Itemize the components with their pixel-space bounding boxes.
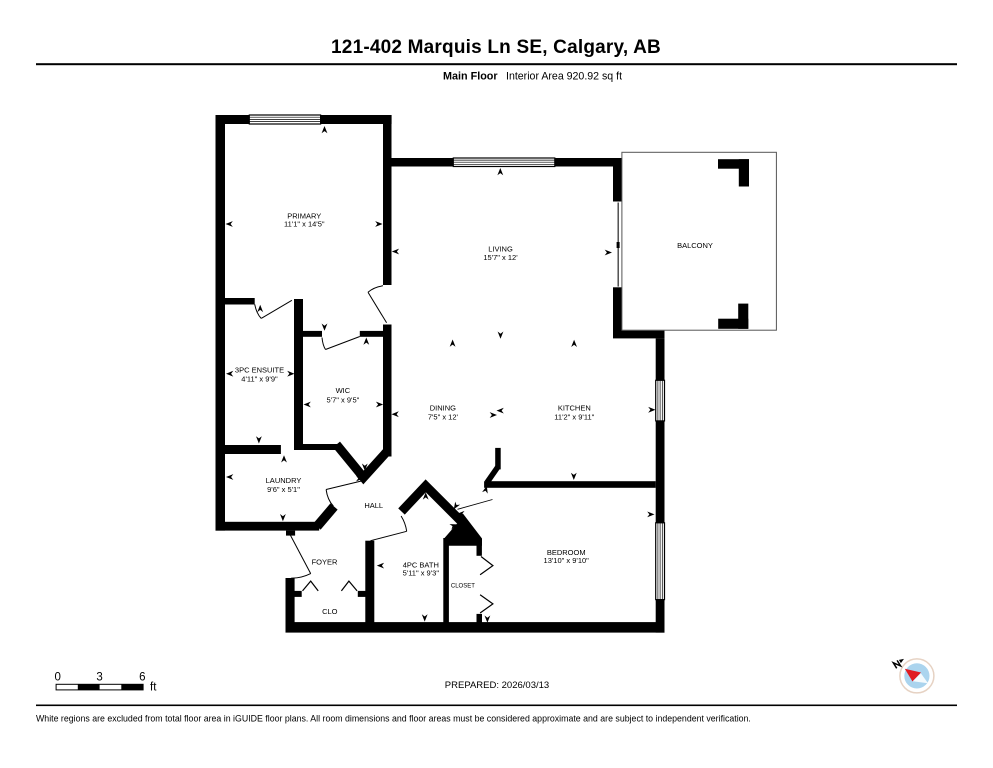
svg-text:6: 6	[139, 672, 145, 684]
svg-text:DINING: DINING	[430, 403, 456, 412]
svg-text:Main Floor: Main Floor	[443, 71, 498, 83]
svg-text:121-402 Marquis Ln SE, Calgary: 121-402 Marquis Ln SE, Calgary, AB	[331, 37, 661, 58]
svg-text:Interior Area 920.92 sq ft: Interior Area 920.92 sq ft	[506, 71, 622, 83]
svg-text:KITCHEN: KITCHEN	[558, 403, 591, 412]
svg-text:9'6" x 5'1": 9'6" x 5'1"	[267, 485, 300, 494]
svg-text:13'10" x 9'10": 13'10" x 9'10"	[544, 556, 590, 565]
svg-text:White regions are excluded fro: White regions are excluded from total fl…	[36, 714, 751, 724]
svg-text:11'2" x 9'11": 11'2" x 9'11"	[554, 413, 594, 422]
svg-text:WIC: WIC	[336, 386, 351, 395]
svg-text:5'7" x 9'5": 5'7" x 9'5"	[327, 395, 360, 404]
svg-text:FOYER: FOYER	[312, 558, 338, 567]
svg-text:PREPARED: 2026/03/13: PREPARED: 2026/03/13	[445, 680, 549, 691]
svg-text:11'1" x 14'5": 11'1" x 14'5"	[284, 220, 325, 229]
svg-text:ft: ft	[150, 682, 157, 694]
svg-text:7'5" x 12': 7'5" x 12'	[428, 413, 459, 422]
svg-text:15'7" x 12': 15'7" x 12'	[483, 253, 518, 262]
svg-text:BALCONY: BALCONY	[677, 241, 713, 250]
svg-text:4'11" x 9'9": 4'11" x 9'9"	[241, 374, 278, 383]
svg-text:3: 3	[96, 672, 102, 684]
svg-text:0: 0	[54, 672, 60, 684]
svg-text:CLOSET: CLOSET	[451, 584, 475, 590]
svg-text:HALL: HALL	[364, 501, 383, 510]
svg-text:LAUNDRY: LAUNDRY	[266, 476, 302, 485]
svg-text:5'11" x 9'3": 5'11" x 9'3"	[403, 568, 440, 577]
svg-text:3PC ENSUITE: 3PC ENSUITE	[235, 365, 284, 374]
svg-text:CLO: CLO	[322, 607, 338, 616]
